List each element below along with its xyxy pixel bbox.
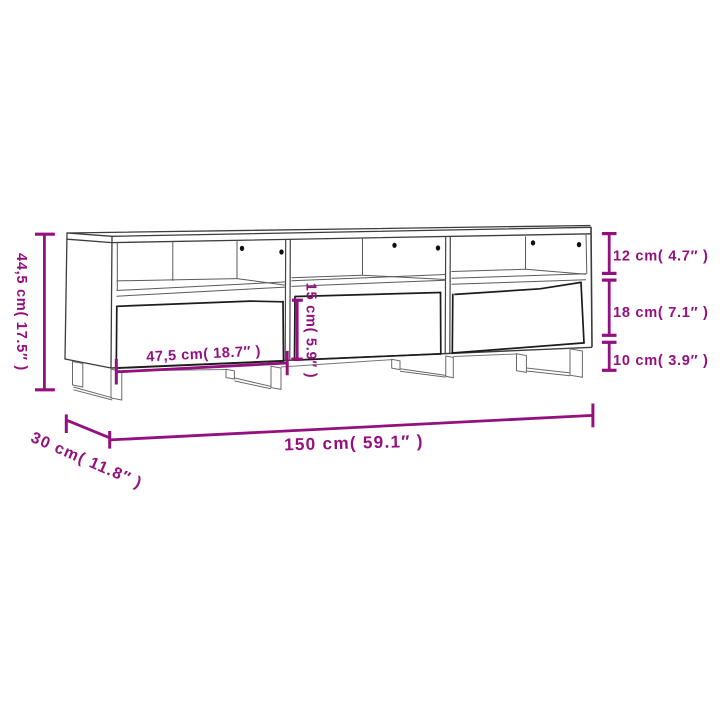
- svg-text:15 cm( 5.9″ ): 15 cm( 5.9″ ): [303, 283, 319, 379]
- svg-text:44,5 cm( 17.5″ ): 44,5 cm( 17.5″ ): [13, 253, 29, 371]
- svg-text:12 cm( 4.7″ ): 12 cm( 4.7″ ): [613, 248, 709, 264]
- svg-text:10 cm( 3.9″ ): 10 cm( 3.9″ ): [613, 353, 709, 369]
- svg-text:150 cm( 59.1″ ): 150 cm( 59.1″ ): [284, 431, 424, 455]
- svg-text:18 cm( 7.1″ ): 18 cm( 7.1″ ): [613, 305, 709, 321]
